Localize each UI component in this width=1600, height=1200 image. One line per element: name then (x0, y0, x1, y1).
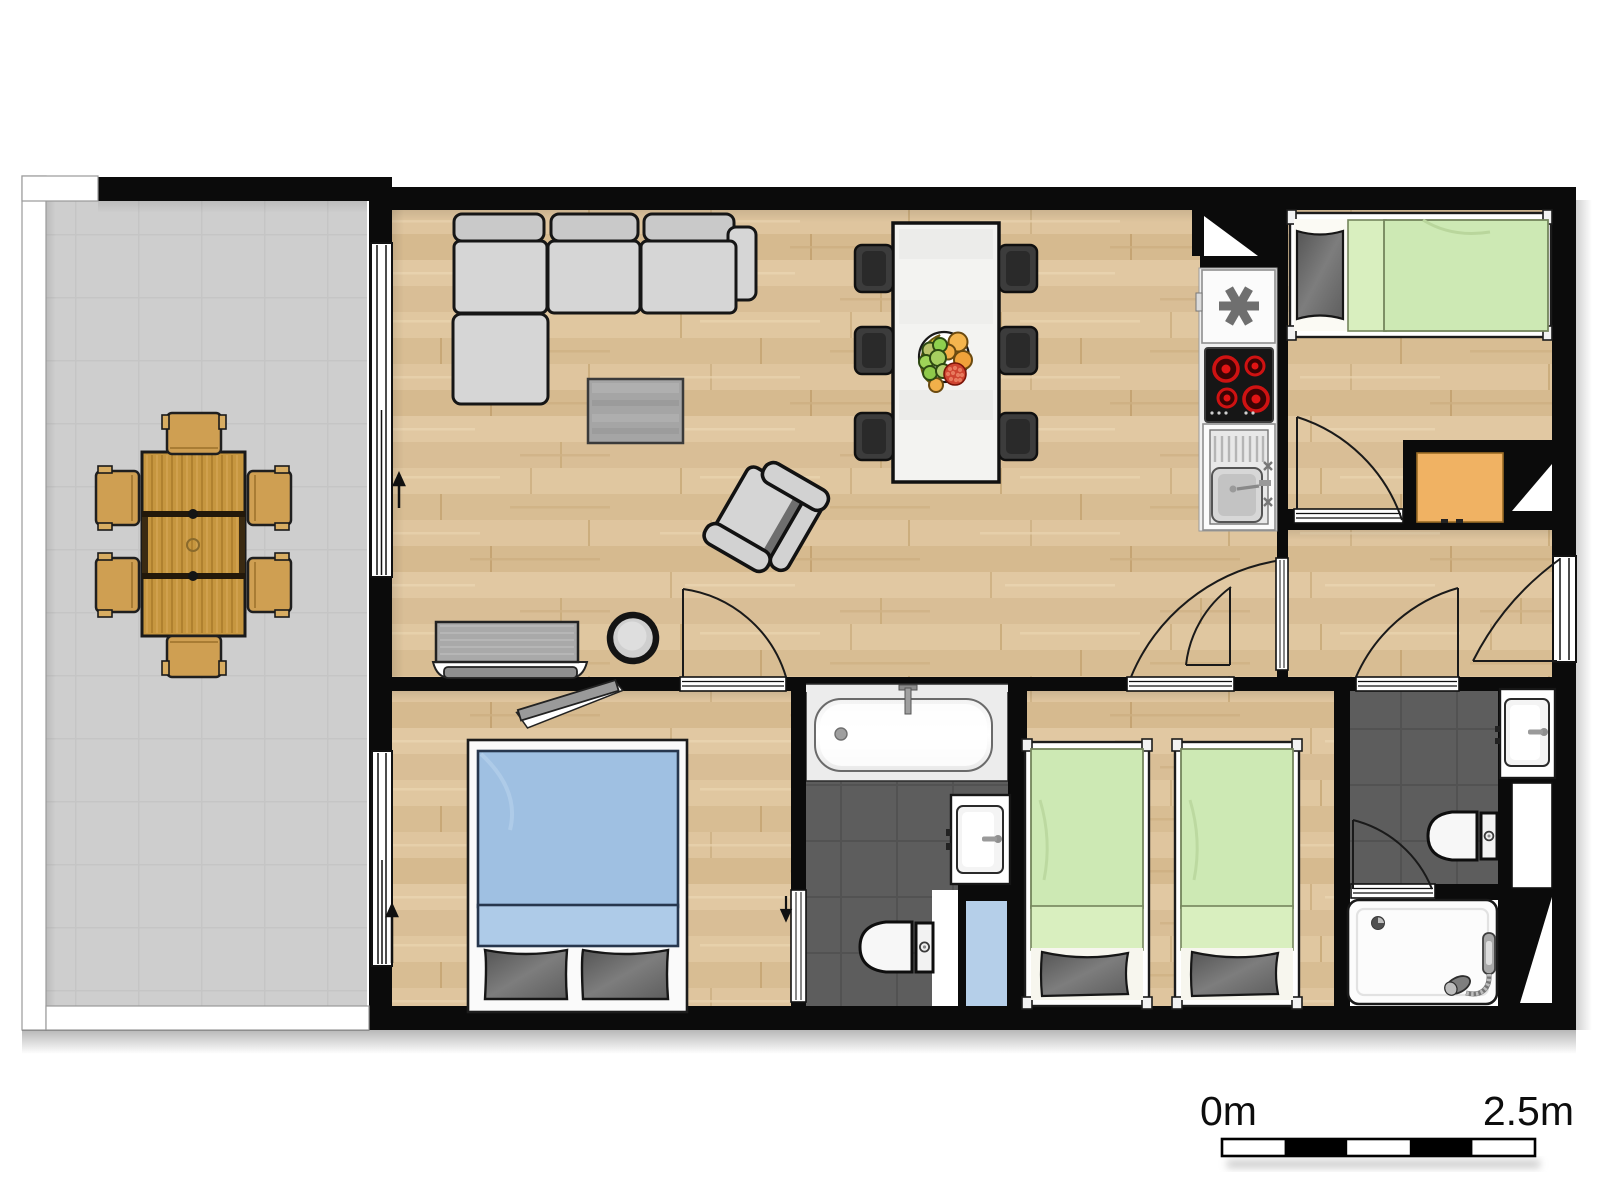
svg-text:0m: 0m (1200, 1088, 1257, 1134)
svg-text:2.5m: 2.5m (1483, 1088, 1574, 1134)
